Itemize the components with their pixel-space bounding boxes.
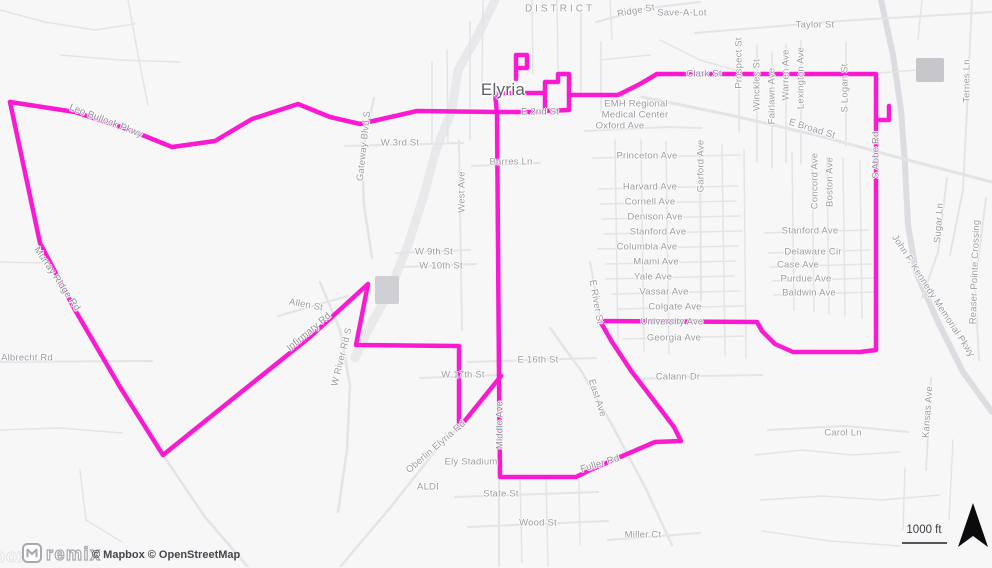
map-label: Medical Center	[602, 110, 669, 121]
road-line	[610, 0, 612, 40]
map-label: W 9th St	[415, 247, 453, 258]
map-label: E 16th St	[518, 355, 559, 366]
map-label: W 10th St	[419, 261, 463, 272]
map-label: West Ave	[457, 171, 468, 212]
scale-bar: 1000 ft	[896, 524, 952, 548]
map-label: S Abbe Rd	[871, 131, 882, 178]
road-line	[459, 140, 462, 330]
road-line	[660, 40, 735, 70]
map-label: Oxford Ave	[596, 121, 645, 132]
map-label: Winckles St	[752, 59, 763, 111]
map-label: Lexington Ave	[796, 47, 807, 109]
map-canvas[interactable]: DISTRICTElyriaRidge StSave-A-LotTaylor S…	[0, 0, 992, 567]
map-label: Miller Ct	[625, 530, 662, 541]
road-line	[918, 0, 922, 40]
map-label: E 2nd St	[521, 107, 559, 118]
map-label: Fairlawn Ave	[767, 68, 778, 125]
map-label: Prospect St	[734, 37, 745, 88]
road-line	[903, 468, 905, 530]
map-label: DISTRICT	[525, 4, 595, 15]
map-label: University Ave	[641, 317, 704, 328]
map-label: Ely Stadium	[445, 457, 498, 468]
map-label: Barres Ln	[490, 157, 533, 168]
map-label: Princeton Ave	[616, 151, 677, 162]
remix-logo-icon	[22, 543, 42, 568]
road-line	[0, 428, 122, 433]
map-label: Taylor St	[796, 20, 835, 31]
scale-line	[902, 542, 947, 544]
map-label: Denison Ave	[627, 212, 682, 223]
map-label: Carol Ln	[824, 428, 862, 439]
road-line	[0, 262, 42, 263]
map-label: Stanford Ave	[630, 227, 687, 238]
map-label: S Logan St	[840, 63, 851, 112]
road-line	[128, 0, 148, 105]
road-line	[60, 55, 180, 62]
road-line	[695, 12, 992, 33]
map-label: Ternes Ln	[962, 59, 973, 103]
road-line	[447, 50, 448, 142]
map-label: Columbia Ave	[617, 242, 678, 253]
scale-label: 1000 ft	[896, 524, 952, 536]
map-label: Warren Ave	[781, 49, 792, 100]
map-label: W 17th St	[441, 370, 485, 381]
building-footprint	[916, 58, 944, 82]
map-label: Cornell Ave	[625, 197, 676, 208]
road-line	[579, 480, 580, 545]
road-line	[860, 160, 862, 318]
map-label: Concord Ave	[810, 153, 821, 209]
road-line	[760, 495, 940, 500]
transit-route-line[interactable]	[516, 55, 527, 79]
map-label: Yale Ave	[634, 272, 672, 283]
road-line	[755, 450, 900, 455]
map-label: Save-A-Lot	[657, 8, 707, 19]
transit-route-line[interactable]	[10, 102, 501, 455]
map-label: Harvard Ave	[623, 182, 677, 193]
map-label: EMH Regional	[604, 99, 668, 110]
map-label: Vassar Ave	[639, 287, 688, 298]
map-label: W 3rd St	[381, 138, 420, 149]
map-copyright-links[interactable]: © Mapbox © OpenStreetMap	[92, 549, 240, 561]
road-line	[482, 0, 483, 88]
map-label: Miami Ave	[633, 257, 678, 268]
map-label: Stanford Ave	[782, 226, 839, 237]
map-label: Clark St	[686, 69, 721, 80]
road-line	[744, 150, 746, 358]
road-line	[950, 0, 972, 255]
road-line	[355, 0, 495, 358]
map-label: Delaware Cir	[784, 247, 841, 258]
attribution-bar: box remix © Mapbox © OpenStreetMap	[0, 538, 400, 567]
map-label: State St	[483, 489, 518, 500]
road-line	[550, 328, 672, 545]
map-label: ALDI	[417, 482, 439, 493]
map-label: Boston Ave	[825, 157, 836, 207]
road-line	[80, 470, 122, 542]
road-line	[0, 10, 135, 30]
map-label: Elyria	[481, 80, 525, 100]
map-label: Case Ave	[777, 260, 819, 271]
building-footprint	[375, 276, 399, 304]
map-label: Middle Ave	[495, 401, 506, 449]
map-label: Albrecht Rd	[1, 353, 53, 364]
road-line	[455, 492, 598, 497]
map-label: Georgia Ave	[647, 333, 701, 344]
map-label: Wood St	[519, 518, 557, 529]
map-label: Garford Ave	[696, 140, 707, 193]
map-label: Purdue Ave	[781, 274, 832, 285]
north-arrow-icon	[950, 500, 992, 554]
road-line	[762, 531, 900, 546]
road-line	[600, 55, 650, 60]
map-label: Baldwin Ave	[782, 288, 836, 299]
transit-route-line[interactable]	[545, 74, 569, 111]
map-label: Calann Dr	[656, 372, 701, 383]
map-label: Colgate Ave	[648, 302, 701, 313]
